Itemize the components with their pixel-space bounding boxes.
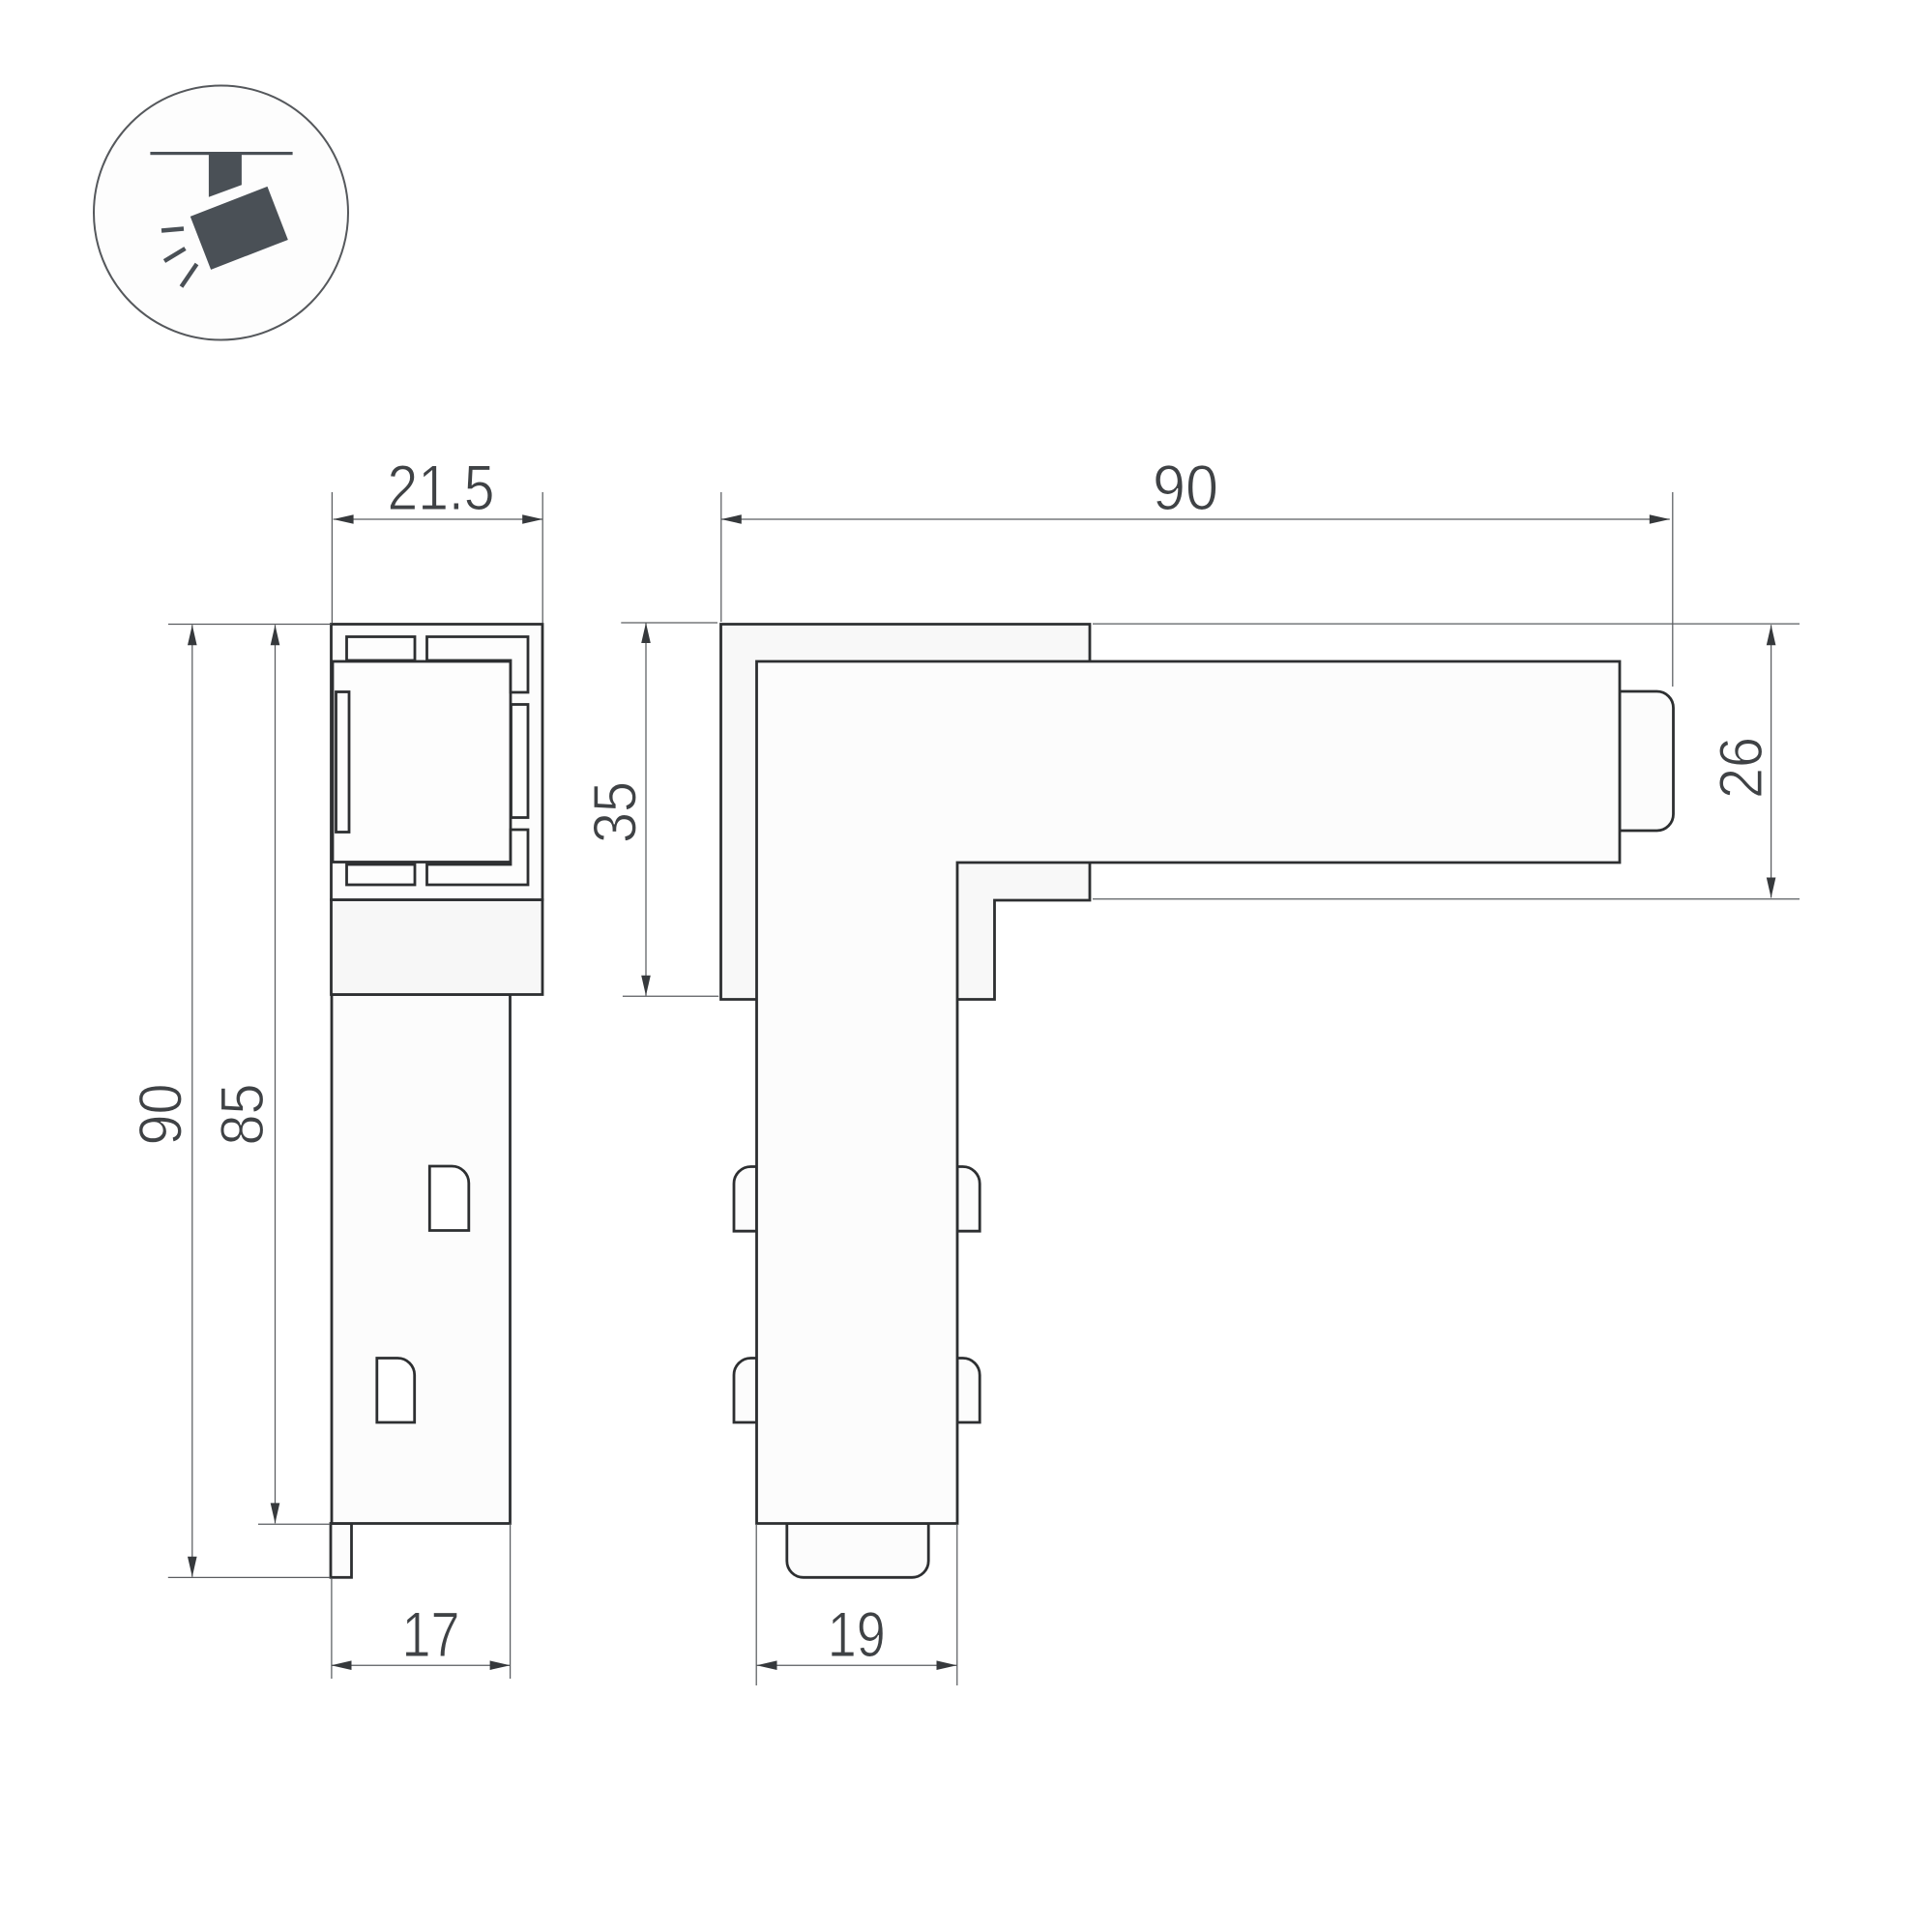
svg-text:90: 90 <box>1153 452 1218 523</box>
svg-text:21.5: 21.5 <box>388 452 495 523</box>
svg-text:90: 90 <box>128 1084 195 1146</box>
svg-text:19: 19 <box>828 1598 886 1670</box>
svg-text:85: 85 <box>209 1084 277 1146</box>
svg-text:35: 35 <box>582 781 650 843</box>
svg-text:26: 26 <box>1708 737 1775 799</box>
svg-text:17: 17 <box>402 1598 460 1670</box>
